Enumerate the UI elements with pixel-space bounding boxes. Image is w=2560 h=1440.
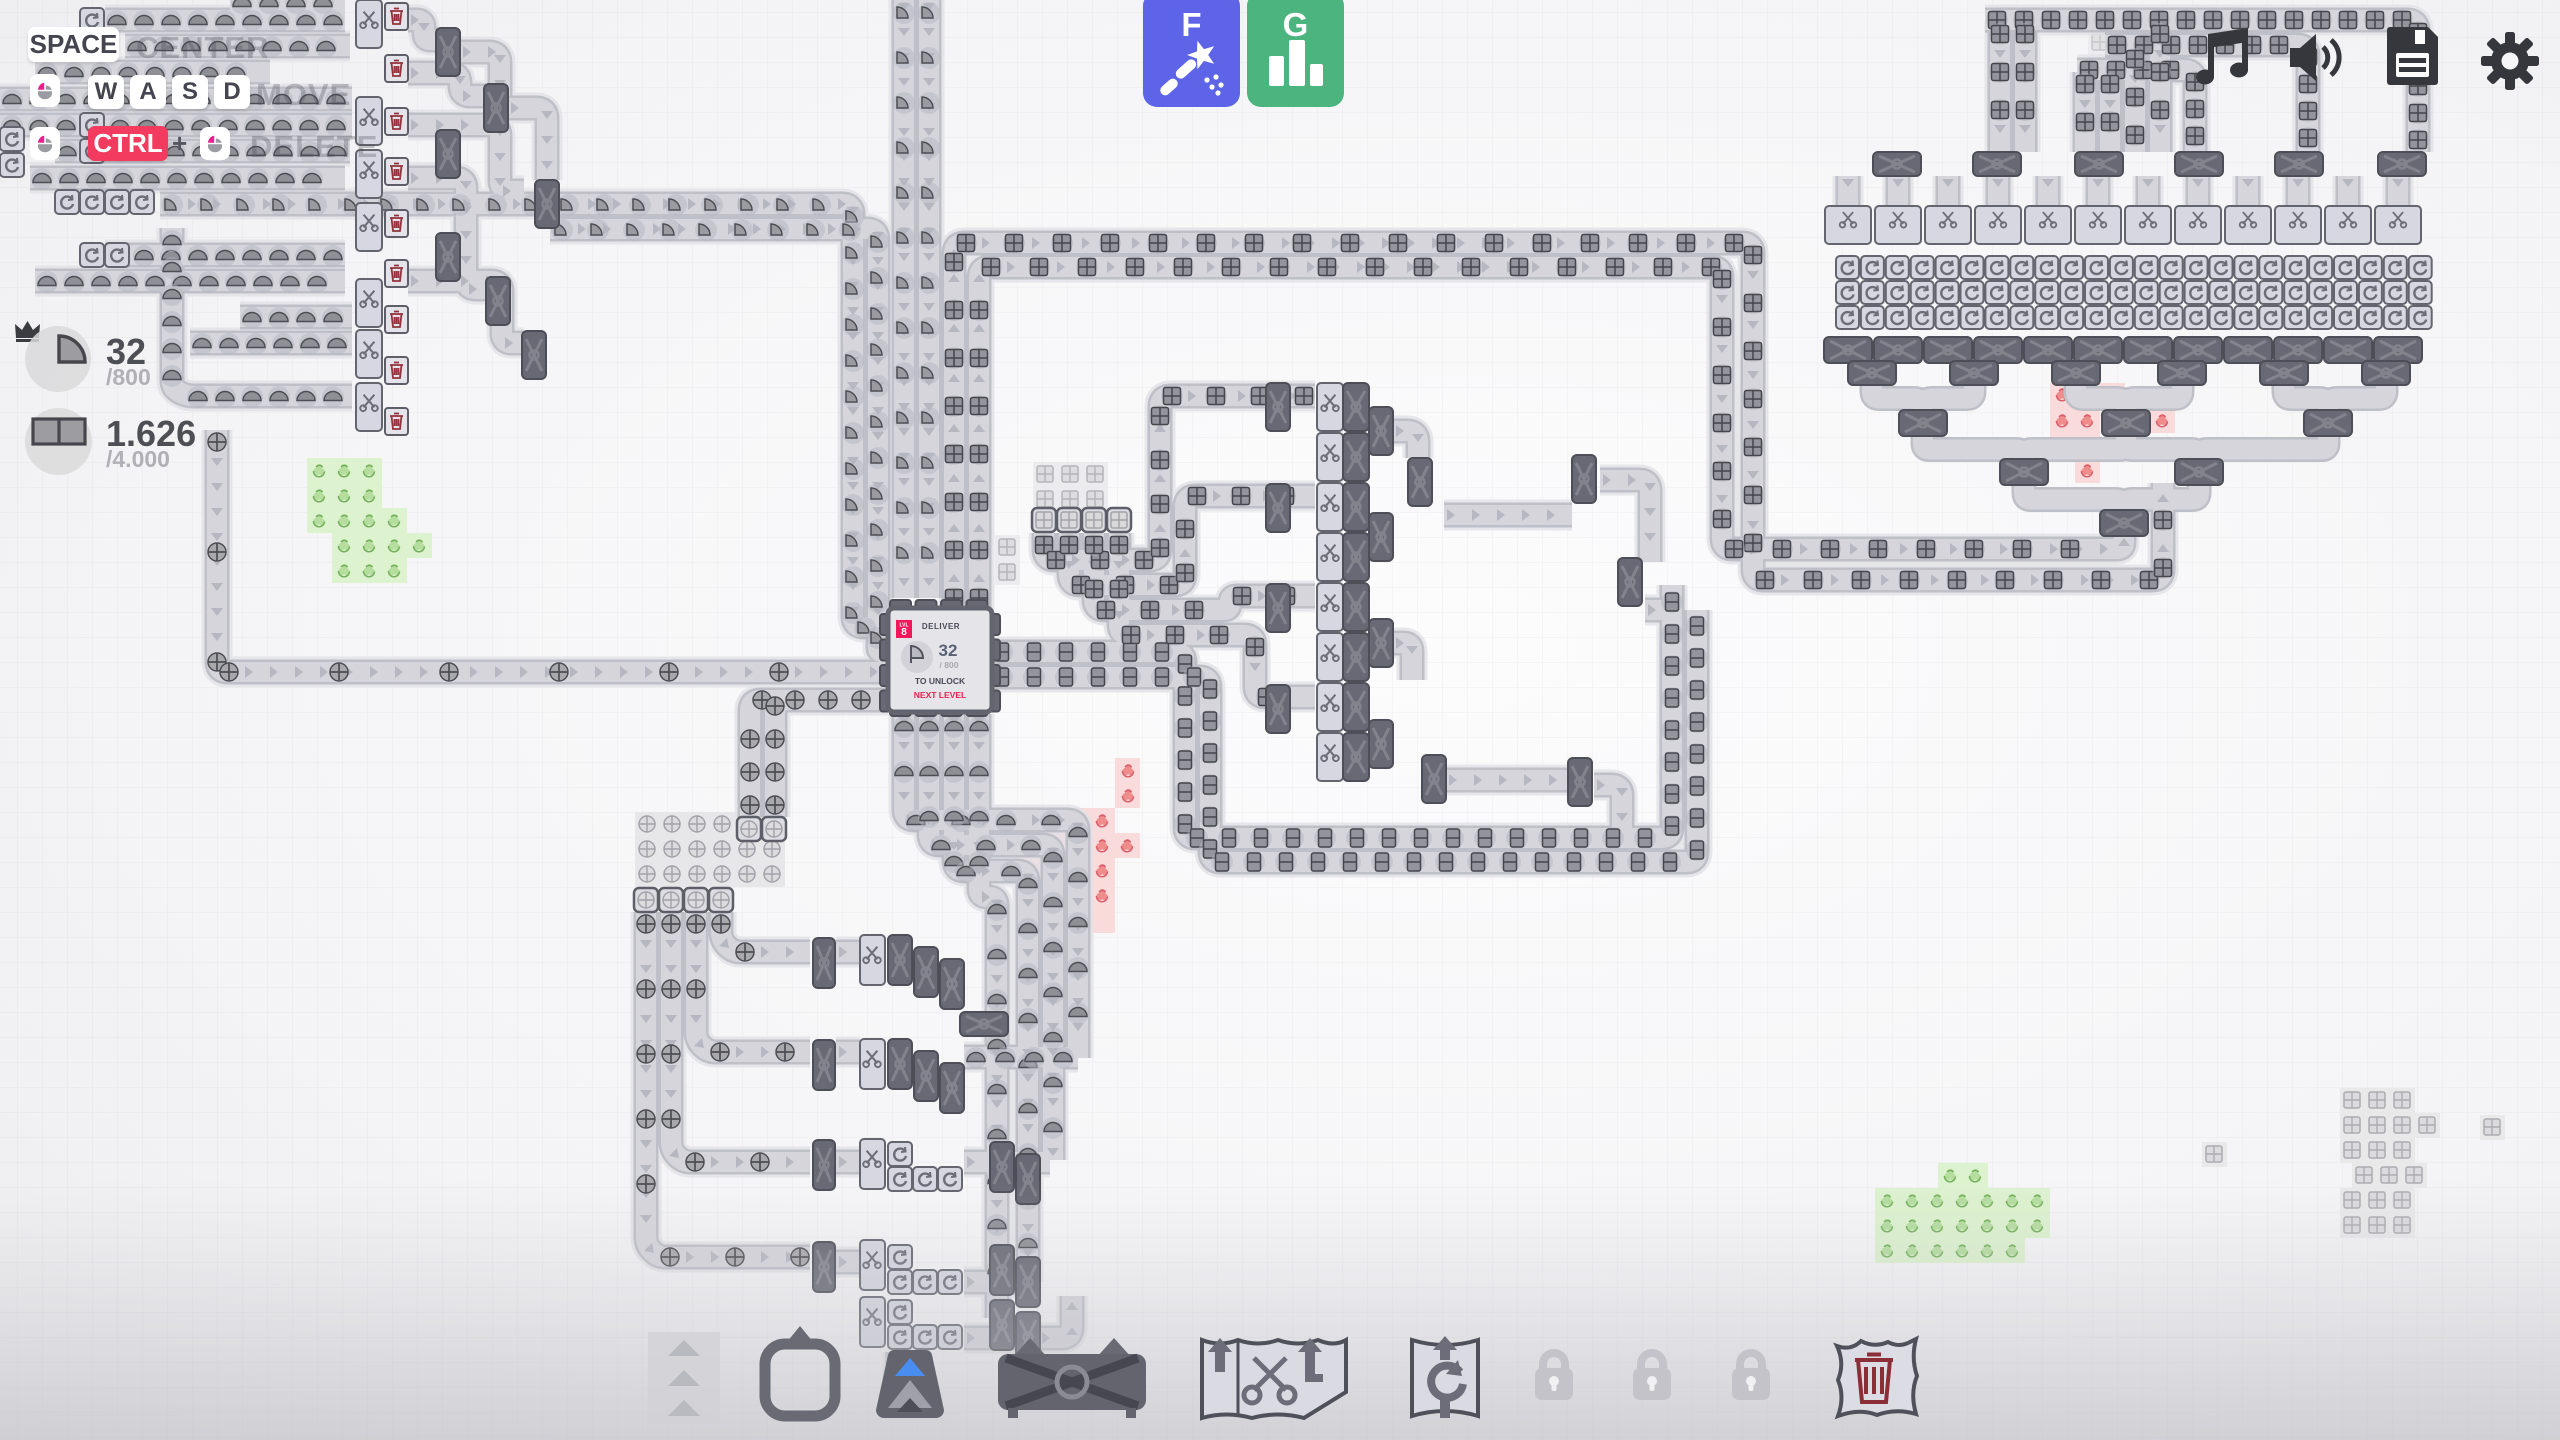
svg-text:NEXT LEVEL: NEXT LEVEL xyxy=(914,690,966,700)
svg-text:TO UNLOCK: TO UNLOCK xyxy=(915,676,966,686)
svg-text:32: 32 xyxy=(939,641,958,660)
svg-text:DELIVER: DELIVER xyxy=(922,622,960,631)
svg-text:/ 800: / 800 xyxy=(940,660,959,670)
svg-text:8: 8 xyxy=(901,627,907,638)
